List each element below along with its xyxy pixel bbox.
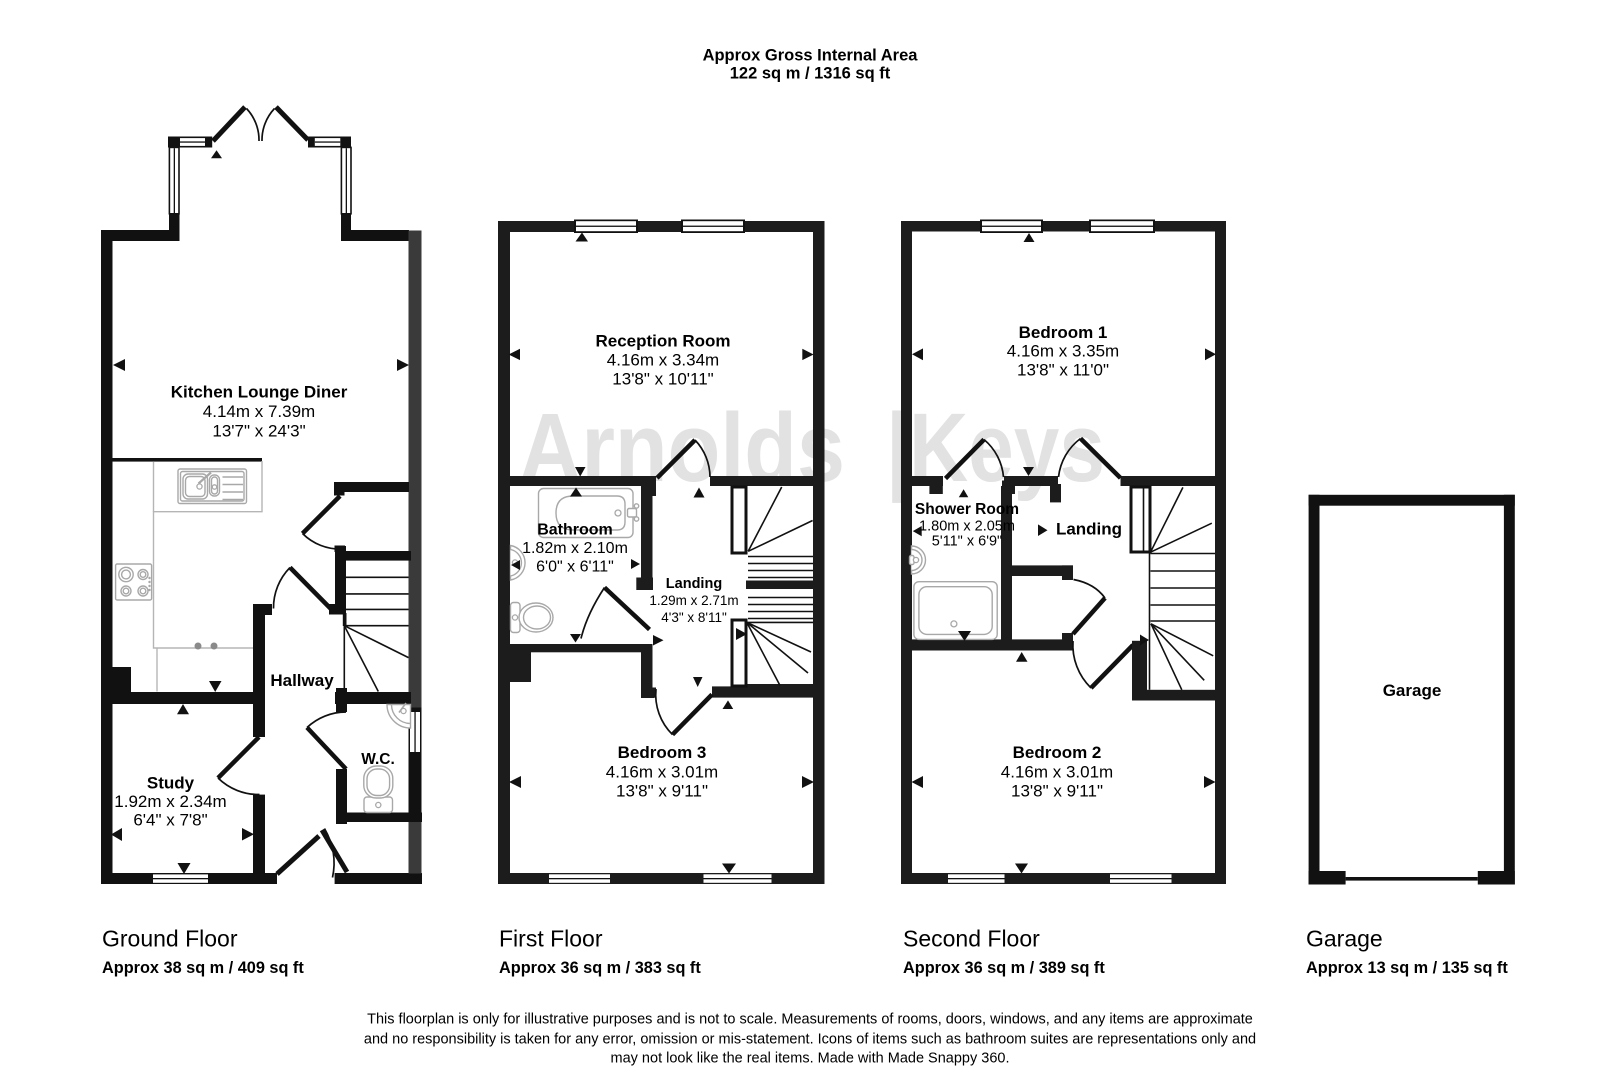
svg-text:Approx 13 sq m / 135 sq ft: Approx 13 sq m / 135 sq ft	[1306, 959, 1508, 977]
svg-text:4.16m x 3.34m: 4.16m x 3.34m	[607, 351, 719, 370]
svg-text:W.C.: W.C.	[361, 751, 395, 768]
svg-text:1.80m x 2.05m: 1.80m x 2.05m	[919, 519, 1015, 535]
svg-text:First Floor: First Floor	[499, 926, 603, 952]
svg-text:5'11" x 6'9": 5'11" x 6'9"	[932, 534, 1002, 550]
svg-text:This floorplan is only for ill: This floorplan is only for illustrative …	[367, 1012, 1253, 1028]
svg-text:Bathroom: Bathroom	[537, 522, 613, 539]
svg-text:Landing: Landing	[1056, 520, 1122, 539]
svg-text:4.16m x 3.35m: 4.16m x 3.35m	[1007, 341, 1119, 360]
svg-text:Approx 38 sq m / 409 sq ft: Approx 38 sq m / 409 sq ft	[102, 959, 304, 977]
svg-text:Kitchen Lounge Diner: Kitchen Lounge Diner	[171, 382, 348, 401]
svg-text:Reception Room: Reception Room	[595, 331, 730, 350]
svg-text:122 sq m / 1316 sq ft: 122 sq m / 1316 sq ft	[730, 64, 891, 82]
svg-text:Hallway: Hallway	[270, 671, 334, 690]
svg-text:Ground Floor: Ground Floor	[102, 926, 238, 952]
svg-text:and no responsibility is taken: and no responsibility is taken for any e…	[364, 1032, 1256, 1048]
svg-text:4.16m x 3.01m: 4.16m x 3.01m	[606, 762, 718, 781]
svg-text:Approx 36 sq m / 383 sq ft: Approx 36 sq m / 383 sq ft	[499, 959, 701, 977]
svg-text:6'4" x 7'8": 6'4" x 7'8"	[133, 811, 207, 830]
svg-text:1.82m x 2.10m: 1.82m x 2.10m	[522, 540, 628, 557]
svg-text:13'8" x 9'11": 13'8" x 9'11"	[616, 782, 708, 801]
svg-text:6'0" x 6'11": 6'0" x 6'11"	[536, 559, 614, 576]
svg-text:Second Floor: Second Floor	[903, 926, 1040, 952]
svg-text:1.29m x 2.71m: 1.29m x 2.71m	[649, 593, 738, 608]
svg-text:Bedroom 2: Bedroom 2	[1013, 743, 1102, 762]
svg-text:may not look like the real ite: may not look like the real items. Made w…	[611, 1051, 1010, 1067]
svg-text:13'8" x 11'0": 13'8" x 11'0"	[1017, 361, 1109, 380]
svg-text:13'8" x 10'11": 13'8" x 10'11"	[612, 370, 713, 389]
svg-text:Bedroom 1: Bedroom 1	[1019, 323, 1108, 342]
svg-text:Garage: Garage	[1383, 681, 1442, 700]
svg-text:4.14m x 7.39m: 4.14m x 7.39m	[203, 402, 315, 421]
svg-text:1.92m x 2.34m: 1.92m x 2.34m	[114, 792, 226, 811]
svg-text:Approx 36 sq m / 389 sq ft: Approx 36 sq m / 389 sq ft	[903, 959, 1105, 977]
svg-text:4'3" x 8'11": 4'3" x 8'11"	[661, 610, 727, 625]
svg-text:|Keys: |Keys	[886, 393, 1105, 503]
svg-text:13'8" x 9'11": 13'8" x 9'11"	[1011, 782, 1103, 801]
svg-text:Study: Study	[147, 774, 195, 793]
svg-text:Garage: Garage	[1306, 926, 1383, 952]
svg-text:Bedroom 3: Bedroom 3	[618, 743, 707, 762]
svg-text:4.16m x 3.01m: 4.16m x 3.01m	[1001, 762, 1113, 781]
svg-text:Approx Gross Internal Area: Approx Gross Internal Area	[703, 47, 919, 65]
svg-text:Shower Room: Shower Room	[915, 501, 1019, 518]
svg-text:Landing: Landing	[666, 576, 722, 592]
svg-text:13'7" x 24'3": 13'7" x 24'3"	[212, 421, 305, 440]
